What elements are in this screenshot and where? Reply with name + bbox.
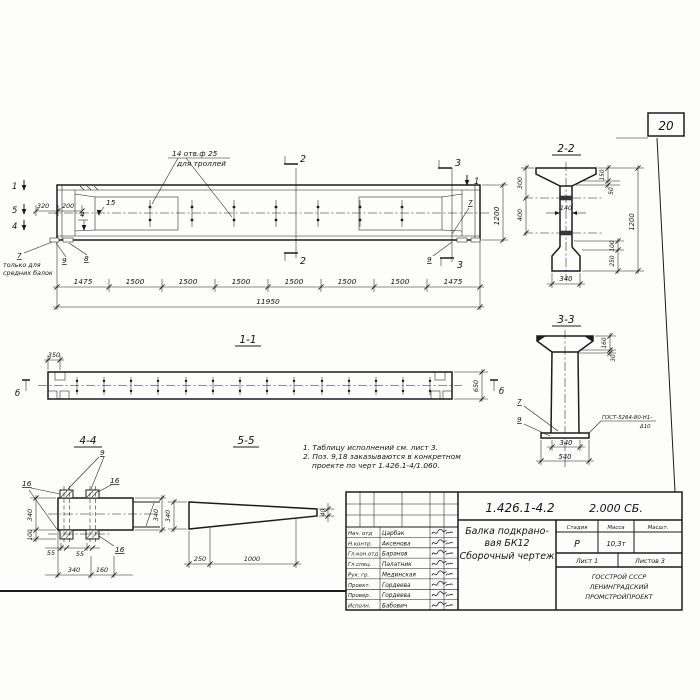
blueprint-canvas: 20 (0, 0, 700, 700)
svg-text:7: 7 (468, 198, 473, 207)
svg-text:2: 2 (300, 256, 306, 267)
svg-text:Царбак: Царбак (382, 531, 405, 537)
svg-text:340: 340 (560, 439, 573, 447)
only-middle-beams-note: только для средних балок (3, 261, 53, 277)
section-3-3: 3-3 7 9 ГОСТ-5264-80-Н1- Δ10 160 (517, 314, 656, 468)
svg-text:Гл.спец.: Гл.спец. (348, 562, 371, 568)
svg-text:160: 160 (96, 566, 108, 574)
svg-text:55: 55 (47, 549, 55, 557)
drawing-sheet: { "sheet": { "page_number": "20" }, "ele… (0, 0, 700, 700)
svg-text:Провер.: Провер. (348, 593, 370, 599)
elevation-view: 1 5 4 2 2 3 3 1 (3, 149, 508, 310)
product-title-line2: вая БК12 (485, 538, 530, 549)
section-2-2: 2-2 300 400 150 50 (516, 143, 644, 288)
svg-text:Н.контр.: Н.контр. (348, 541, 372, 547)
position-16-topright: 16 (98, 476, 120, 492)
svg-text:Баранов: Баранов (382, 552, 408, 558)
position-15: 15 (97, 198, 116, 216)
svg-text:8: 8 (84, 254, 89, 263)
svg-text:16: 16 (22, 479, 32, 488)
section-mark-1-left: 1 (12, 180, 26, 191)
svg-text:100: 100 (28, 529, 34, 540)
svg-text:б: б (499, 386, 504, 396)
svg-text:650: 650 (472, 380, 480, 392)
position-7-right: 7 (452, 198, 473, 234)
org-line3: ПРОМСТРОЙПРОЕКТ (585, 592, 653, 601)
dim-chain-bottom: 1475 1500 1500 1500 1500 1500 1500 1475 … (53, 242, 484, 310)
svg-text:1500: 1500 (285, 277, 304, 286)
view-4-4: 4-4 340 100 (22, 435, 166, 578)
svg-text:Рук. гр.: Рук. гр. (348, 572, 369, 578)
svg-text:Гордеева: Гордеева (382, 583, 411, 589)
dim-1200-section: 1200 (628, 165, 641, 274)
dim-100-250: 100 250 (574, 238, 644, 274)
position-9-right: 9 (427, 242, 452, 264)
dim-340-100-left: 340 100 (26, 495, 56, 542)
plan-holes (76, 377, 431, 395)
svg-text:250: 250 (194, 555, 206, 563)
svg-text:1: 1 (12, 181, 17, 191)
svg-text:1500: 1500 (232, 277, 251, 286)
svg-text:140: 140 (560, 204, 572, 212)
svg-text:только для: только для (3, 261, 41, 269)
svg-text:340: 340 (26, 509, 34, 521)
position-16-topleft: 16 (22, 479, 60, 532)
svg-text:9: 9 (100, 448, 105, 457)
svg-text:7: 7 (517, 397, 522, 406)
dim-total-length: 11950 (256, 297, 280, 306)
svg-text:16: 16 (115, 545, 125, 554)
dim-150-50: 150 50 (576, 165, 644, 195)
svg-text:340: 340 (164, 510, 172, 522)
org-line1: ГОССТРОЙ СССР (592, 572, 647, 581)
dim-340-540: 340 540 (536, 439, 594, 465)
sheet-count: Листов 3 (634, 557, 665, 565)
svg-text:1475: 1475 (444, 277, 463, 286)
sheet-number: Лист 1 (575, 557, 598, 565)
svg-text:5: 5 (12, 205, 17, 215)
section-mark-4-left: 4 (12, 220, 26, 231)
svg-text:250: 250 (610, 255, 616, 266)
position-8-left: 8 (69, 243, 89, 263)
svg-text:160: 160 (602, 337, 608, 348)
product-title-line1: Балка подкрано- (465, 526, 549, 537)
dim-250-1000: 250 1000 (184, 519, 301, 568)
svg-text:16: 16 (110, 476, 120, 485)
svg-text:150: 150 (600, 169, 606, 180)
svg-text:Гордеева: Гордеева (382, 593, 411, 599)
page-number: 20 (658, 119, 674, 133)
svg-text:200: 200 (62, 202, 74, 210)
svg-text:9: 9 (517, 415, 522, 424)
section-mark-3-top: 3 (438, 158, 461, 169)
svg-text:350: 350 (48, 351, 60, 359)
svg-text:340: 340 (152, 509, 160, 521)
svg-text:50: 50 (609, 187, 615, 195)
svg-text:3: 3 (457, 260, 463, 271)
dim-340-view55: 340 (164, 499, 187, 532)
svg-text:Исполн.: Исполн. (348, 604, 371, 610)
org-line2: ЛЕНИНГРАДСКИЙ (589, 582, 649, 591)
svg-text:320: 320 (37, 202, 49, 210)
svg-text:1200: 1200 (492, 206, 501, 225)
view-1-1-title: 1-1 (239, 334, 256, 346)
svg-text:ГОСТ-5264-80-Н1-: ГОСТ-5264-80-Н1- (602, 415, 652, 421)
product-title-line3: Сборочный чертеж (460, 551, 555, 562)
svg-text:30: 30 (611, 354, 617, 362)
svg-text:40: 40 (321, 509, 327, 517)
svg-text:340: 340 (560, 275, 573, 283)
dim-340-section22: 340 (547, 273, 585, 288)
svg-text:540: 540 (559, 453, 572, 461)
svg-text:1000: 1000 (244, 555, 260, 563)
view-mark-b-right: б (490, 380, 504, 396)
svg-text:Бабович: Бабович (382, 604, 408, 610)
section-2-2-title: 2-2 (557, 143, 574, 155)
svg-text:Аксенова: Аксенова (381, 541, 411, 547)
svg-text:Гл.кон.отд: Гл.кон.отд (348, 552, 378, 558)
section-3-3-title: 3-3 (557, 314, 574, 326)
svg-text:4: 4 (12, 221, 17, 231)
svg-text:300: 300 (516, 177, 524, 189)
note-line-2: 2. Поз. 9,18 заказываются в конкретном (303, 452, 461, 461)
svg-text:Палатник: Палатник (382, 562, 412, 568)
svg-text:1475: 1475 (74, 277, 93, 286)
svg-text:55: 55 (76, 550, 84, 558)
header-scale: Масшт. (648, 525, 669, 531)
general-notes: 1. Таблицу исполнений см. лист 3. 2. Поз… (303, 443, 461, 470)
view-4-4-title: 4-4 (79, 435, 96, 447)
header-stage: Стадия (567, 525, 588, 531)
svg-text:1500: 1500 (126, 277, 145, 286)
section-mark-2-top: 2 (284, 154, 306, 165)
svg-text:2: 2 (300, 154, 306, 165)
value-stage: Р (574, 539, 580, 550)
svg-text:для троллей: для троллей (176, 159, 226, 168)
dim-1200-elevation: 1200 (482, 182, 508, 242)
svg-text:б: б (15, 388, 20, 398)
svg-text:100: 100 (610, 240, 616, 251)
svg-text:14 отв.ф 25: 14 отв.ф 25 (172, 149, 218, 158)
note-line-1: 1. Таблицу исполнений см. лист 3. (303, 443, 438, 452)
svg-text:3: 3 (455, 158, 461, 169)
position-9-view44: 9 (68, 448, 105, 489)
view-5-5-title: 5-5 (237, 435, 254, 447)
section-mark-2-bottom: 2 (284, 253, 306, 267)
beam-outline (48, 168, 489, 262)
svg-text:средних балок: средних балок (3, 269, 53, 277)
position-16-bottomright: 16 (99, 536, 125, 554)
svg-text:340: 340 (68, 566, 80, 574)
weld-note: ГОСТ-5264-80-Н1- Δ10 (589, 415, 656, 433)
svg-text:9: 9 (62, 256, 67, 265)
svg-text:1200: 1200 (628, 213, 636, 230)
position-7-left: 7 (17, 242, 52, 260)
svg-text:4: 4 (80, 210, 85, 219)
svg-text:1500: 1500 (179, 277, 198, 286)
dim-320-200: 320 200 (33, 202, 84, 216)
svg-text:Мединская: Мединская (382, 572, 416, 578)
value-mass: 10,3т (606, 540, 626, 548)
trolley-holes (149, 200, 404, 227)
bolt-plates (60, 486, 99, 543)
svg-text:Δ10: Δ10 (639, 424, 651, 430)
position-9-left: 9 (56, 243, 67, 265)
title-block: Нач. отдЦарбак Н.контр.Аксенова Гл.кон.о… (346, 492, 682, 610)
svg-text:1500: 1500 (391, 277, 410, 286)
svg-text:1: 1 (474, 176, 479, 186)
svg-text:15: 15 (106, 198, 116, 207)
doc-code: 2.000 СБ. (589, 502, 643, 515)
svg-text:400: 400 (516, 209, 524, 221)
section-mark-3-bottom: 3 (440, 258, 463, 271)
doc-number: 1.426.1-4.2 (485, 501, 554, 515)
dim-55-55: 55 55 (45, 543, 100, 558)
view-1-1: 1-1 350 (15, 334, 504, 402)
note-line-3: проекте по черт 1.426.1-4/1.060. (312, 461, 440, 470)
svg-text:7: 7 (17, 251, 22, 260)
svg-text:1500: 1500 (338, 277, 357, 286)
view-mark-b-left: б (15, 380, 30, 398)
section-mark-5-left: 5 (12, 204, 26, 215)
svg-text:Нач. отд: Нач. отд (348, 531, 372, 537)
dim-300-400: 300 400 (516, 165, 534, 236)
svg-text:9: 9 (427, 255, 432, 264)
header-mass: Масса (607, 525, 624, 531)
svg-text:Проект.: Проект. (348, 583, 370, 589)
dim-40-view55: 40 (319, 503, 334, 522)
dim-350: 350 (44, 351, 64, 370)
